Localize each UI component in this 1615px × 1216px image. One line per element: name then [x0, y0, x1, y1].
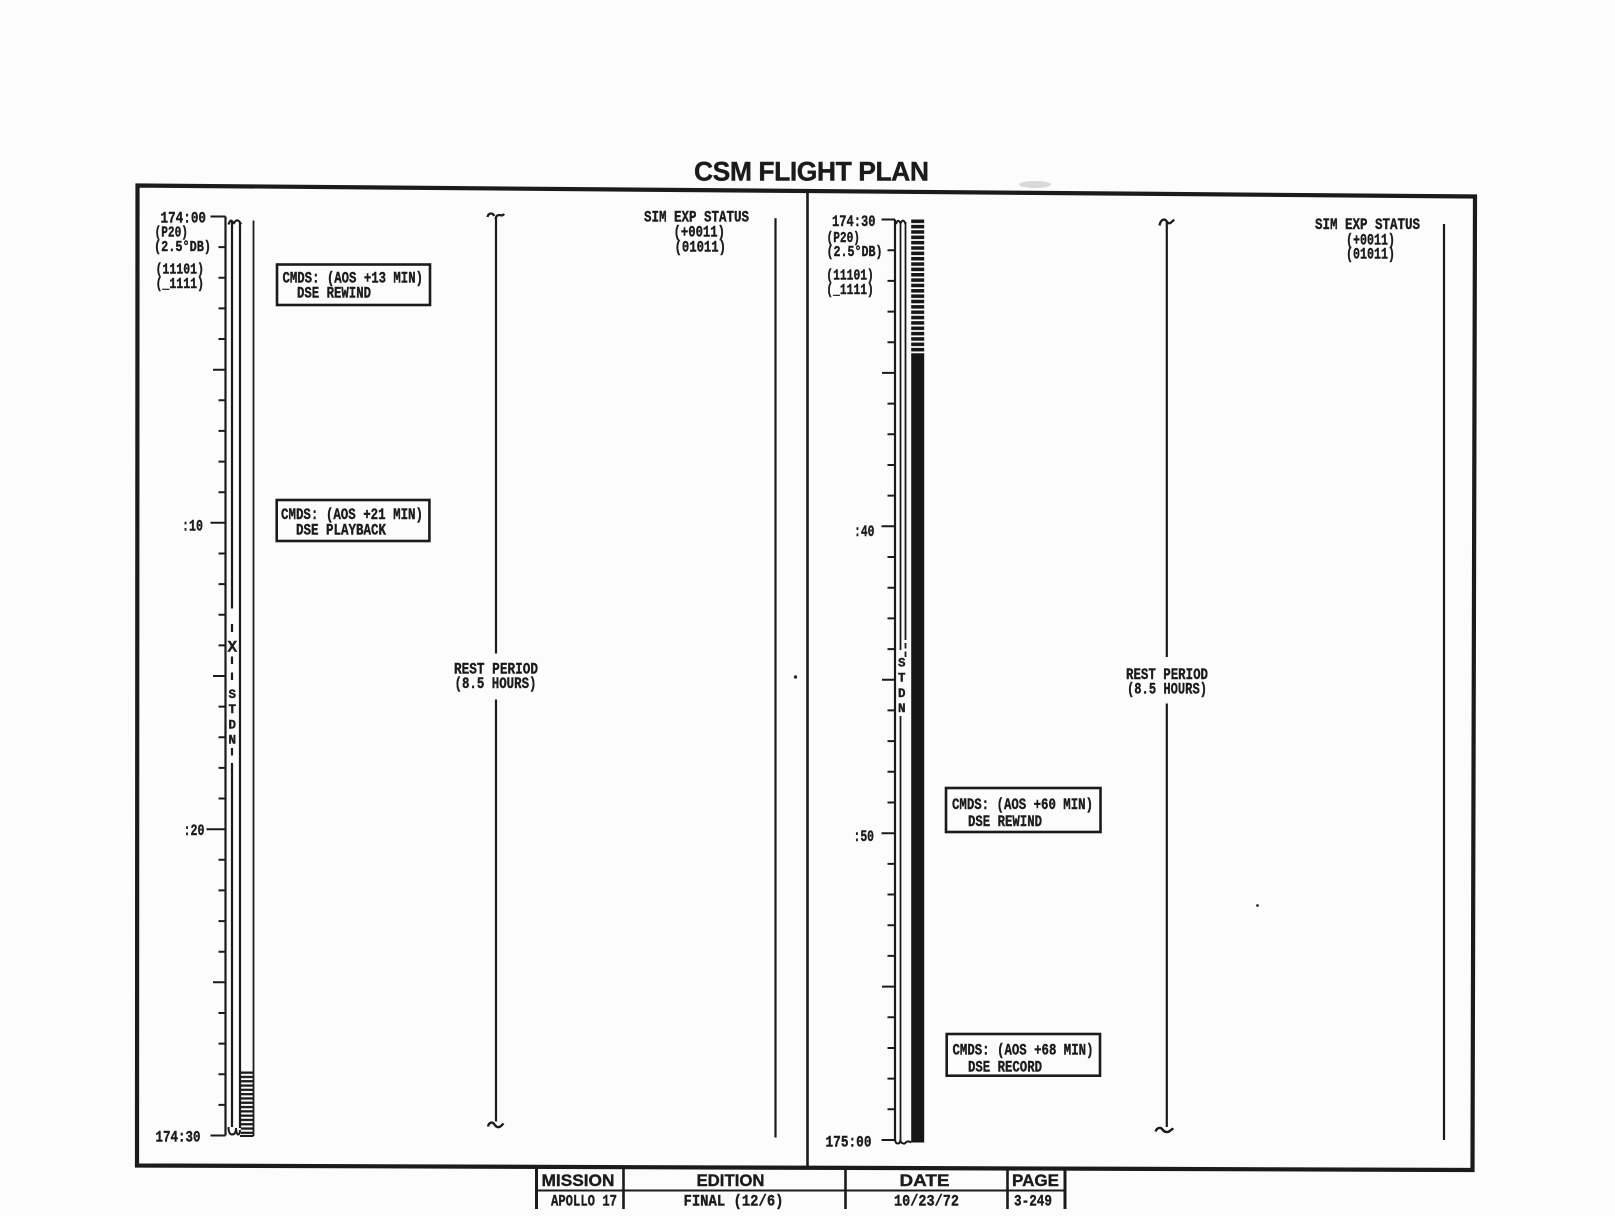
svg-text::20: :20	[184, 822, 205, 840]
svg-text:T: T	[898, 672, 906, 686]
svg-text:175:00: 175:00	[826, 1134, 872, 1152]
svg-text::50: :50	[854, 828, 875, 846]
svg-text:S: S	[898, 657, 906, 671]
svg-text::40: :40	[854, 523, 875, 541]
svg-text:DSE REWIND: DSE REWIND	[968, 813, 1042, 831]
svg-text:MISSION: MISSION	[542, 1171, 615, 1190]
svg-text:CSM FLIGHT PLAN: CSM FLIGHT PLAN	[694, 157, 929, 187]
svg-text:3-249: 3-249	[1014, 1192, 1052, 1210]
svg-text:EDITION: EDITION	[697, 1171, 765, 1190]
svg-text:N: N	[229, 733, 237, 747]
svg-text:(2.5°DB): (2.5°DB)	[154, 239, 211, 256]
svg-text:(_1111): (_1111)	[156, 276, 205, 293]
svg-text:APOLLO 17: APOLLO 17	[551, 1192, 617, 1210]
svg-text:DATE: DATE	[900, 1171, 950, 1190]
svg-text:(_1111): (_1111)	[826, 282, 874, 299]
svg-text:S: S	[229, 688, 237, 702]
svg-text::10: :10	[182, 518, 203, 536]
svg-text:174:30: 174:30	[832, 213, 876, 231]
svg-text:(8.5 HOURS): (8.5 HOURS)	[1127, 681, 1207, 699]
svg-text:(01011): (01011)	[675, 239, 727, 257]
svg-text:174:30: 174:30	[156, 1129, 201, 1147]
svg-text:(01011): (01011)	[1346, 246, 1395, 264]
svg-text:DSE RECORD: DSE RECORD	[968, 1059, 1042, 1077]
svg-text:(8.5 HOURS): (8.5 HOURS)	[455, 675, 537, 693]
svg-text:PAGE: PAGE	[1012, 1171, 1059, 1190]
svg-text:10/23/72: 10/23/72	[894, 1192, 959, 1210]
svg-text:N: N	[898, 702, 906, 716]
svg-text:FINAL (12/6): FINAL (12/6)	[684, 1192, 784, 1210]
svg-text:D: D	[898, 687, 906, 701]
svg-text:D: D	[229, 718, 237, 732]
svg-text:DSE PLAYBACK: DSE PLAYBACK	[296, 521, 386, 539]
svg-text:X: X	[227, 639, 237, 657]
svg-text:DSE REWIND: DSE REWIND	[297, 285, 371, 303]
svg-text:T: T	[229, 703, 237, 717]
svg-text:CMDS: (AOS +68 MIN): CMDS: (AOS +68 MIN)	[953, 1042, 1094, 1060]
svg-text:(2.5°DB): (2.5°DB)	[827, 244, 883, 261]
svg-text:CMDS: (AOS +60 MIN): CMDS: (AOS +60 MIN)	[952, 796, 1093, 814]
